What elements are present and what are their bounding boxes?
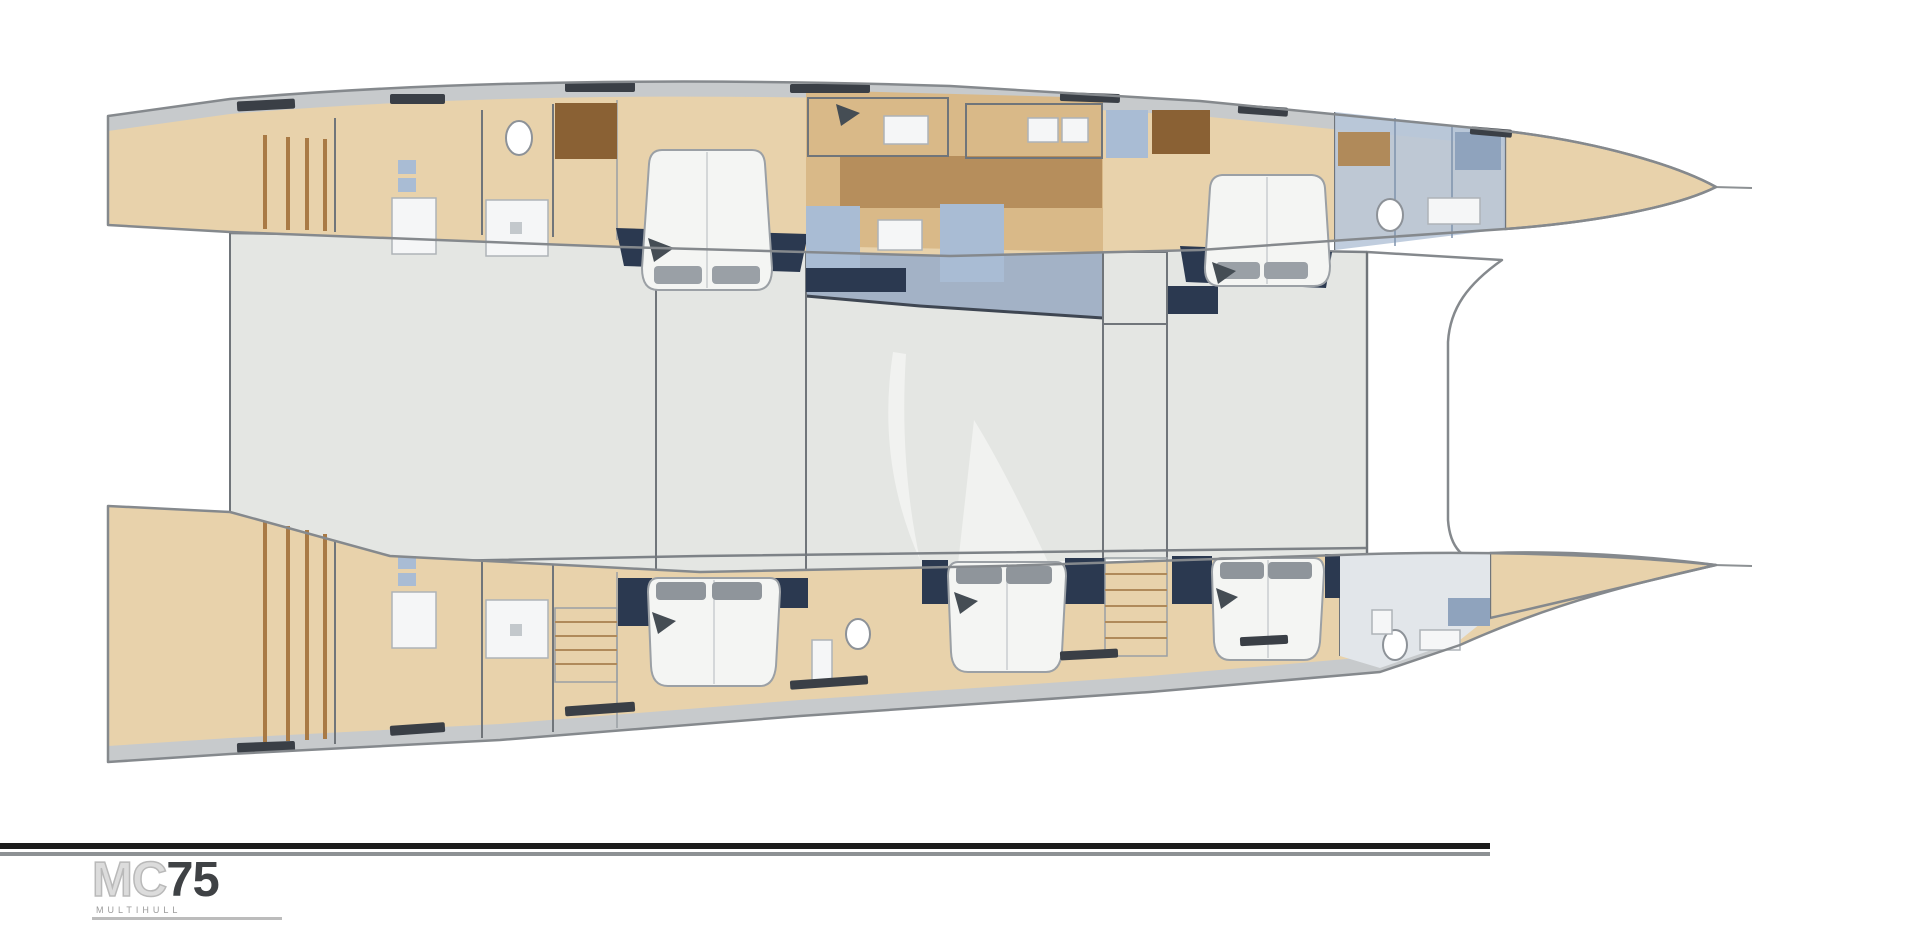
- shower-drain: [510, 624, 522, 636]
- pillow-icon: [1006, 566, 1052, 584]
- vanity-sink: [812, 640, 832, 682]
- shower-drain: [510, 222, 522, 234]
- galley-counter-icon: [940, 204, 1004, 282]
- wardrobe: [1152, 110, 1210, 154]
- towel-shelf: [398, 160, 416, 174]
- brand-logo-text: MC75: [92, 856, 282, 905]
- towel-shelf: [398, 178, 416, 192]
- footer-rule-dark: [0, 843, 1490, 849]
- shower-icon: [1455, 132, 1501, 170]
- brand-underline: [92, 917, 282, 920]
- cabinet: [1372, 610, 1392, 634]
- pillow-icon: [654, 266, 702, 284]
- starboard-bow-bathroom: [1340, 553, 1490, 668]
- vanity-sink: [1428, 198, 1480, 224]
- pillow-icon: [656, 582, 706, 600]
- galley-appliance: [878, 220, 922, 250]
- cooktop: [1028, 118, 1058, 142]
- pillow-icon: [1220, 562, 1264, 579]
- toilet-icon: [1377, 199, 1403, 231]
- towel-shelf: [398, 573, 416, 586]
- galley-front: [806, 268, 906, 292]
- locker: [1172, 556, 1212, 604]
- brand-subtitle: MULTIHULL: [96, 906, 282, 915]
- cooktop: [1062, 118, 1088, 142]
- toilet-icon: [506, 121, 532, 155]
- stairs-icon: [555, 103, 617, 159]
- starboard-bowsprit-tip: [1714, 565, 1752, 566]
- pillow-icon: [712, 582, 762, 600]
- pillow-icon: [956, 566, 1002, 584]
- catamaran-floor-plan: [0, 0, 1920, 926]
- brand-name: MC: [92, 853, 166, 907]
- forward-crossbeam: [1367, 252, 1502, 566]
- pillow-icon: [1264, 262, 1308, 279]
- nav-locker: [1166, 286, 1218, 314]
- seat: [1106, 110, 1148, 158]
- cabinet: [1338, 132, 1390, 166]
- vanity-sink: [392, 592, 436, 648]
- pillow-icon: [1268, 562, 1312, 579]
- toilet-icon: [846, 619, 870, 649]
- wardrobe: [618, 578, 652, 626]
- galley-table: [840, 156, 1102, 208]
- pillow-icon: [712, 266, 760, 284]
- shower-icon: [1448, 598, 1490, 626]
- galley-sink: [884, 116, 928, 144]
- brand-model: 75: [166, 853, 219, 907]
- port-bowsprit-tip: [1714, 187, 1752, 188]
- vanity-sink: [392, 198, 436, 254]
- brand-logo: MC75 MULTIHULL: [92, 856, 282, 920]
